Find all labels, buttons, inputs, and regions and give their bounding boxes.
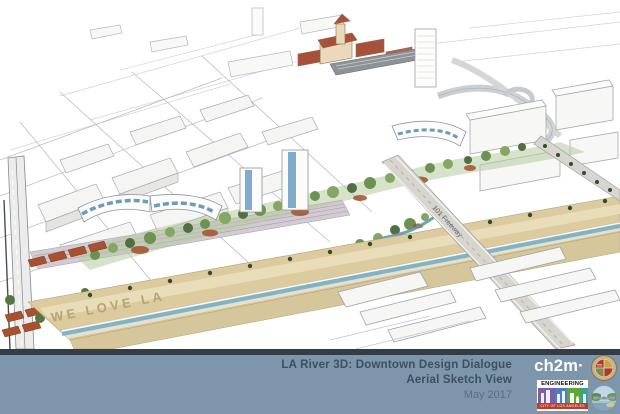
engineering-logo-subtitle: CITY OF LOS ANGELES [537, 403, 588, 409]
engineering-logo: ENGINEERING CITY OF LOS ANGELES [536, 379, 589, 412]
engineering-skyline-graphic [538, 388, 587, 403]
aerial-sketch-illustration: WE LOVE LA 101 Freeway [0, 0, 620, 349]
background-faint-buildings [90, 8, 344, 77]
slide-title: LA River 3D: Downtown Design Dialogue [281, 358, 512, 373]
la-city-seal-icon [591, 355, 617, 381]
engineering-logo-title: ENGINEERING [537, 380, 588, 388]
tall-tower [415, 29, 436, 87]
ch2m-logo: ch2m· [531, 355, 587, 377]
slide-subtitle: Aerial Sketch View [281, 373, 512, 388]
slide-date: May 2017 [281, 388, 512, 403]
la-river-badge-icon [591, 385, 617, 411]
caption-block: LA River 3D: Downtown Design Dialogue Ae… [281, 358, 512, 403]
slide: WE LOVE LA 101 Freeway [0, 0, 620, 414]
